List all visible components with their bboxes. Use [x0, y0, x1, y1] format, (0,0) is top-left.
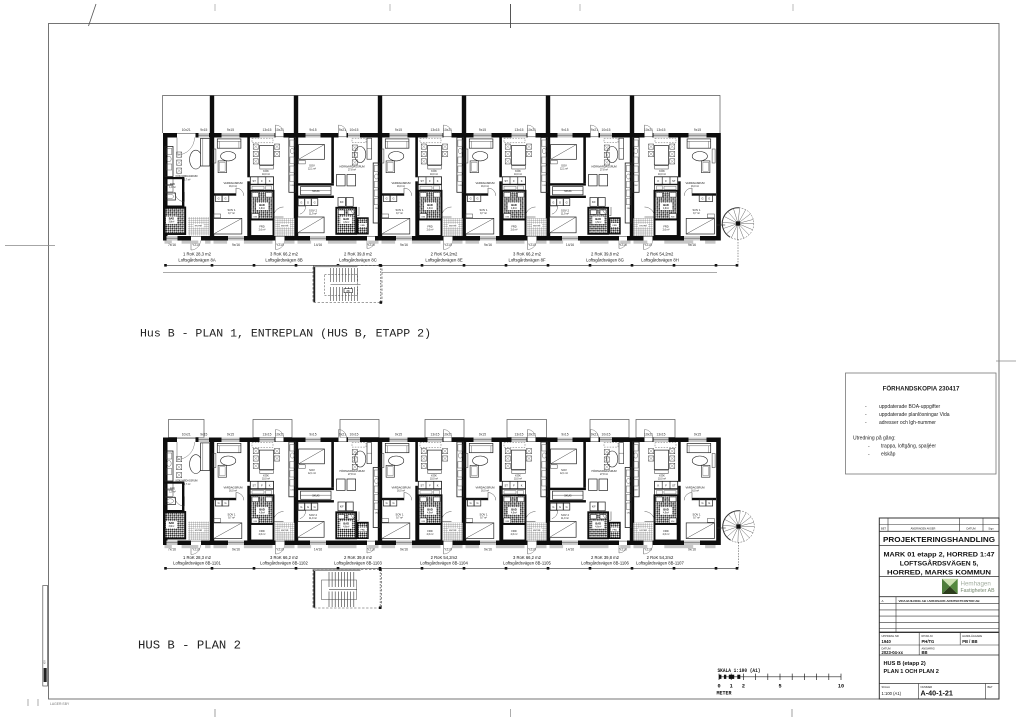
svg-text:10x21: 10x21: [275, 128, 284, 132]
svg-text:ENTRÉ: ENTRÉ: [533, 225, 541, 228]
svg-text:G: G: [701, 196, 703, 200]
svg-text:DM: DM: [542, 490, 546, 492]
svg-text:16,0 m²: 16,0 m²: [229, 489, 237, 492]
svg-text:2 RoK 54,2m2: 2 RoK 54,2m2: [647, 555, 674, 560]
svg-text:Loftsgårdsvägen 8F: Loftsgårdsvägen 8F: [508, 257, 545, 262]
svg-text:10x21: 10x21: [527, 433, 536, 437]
svg-text:10x21: 10x21: [527, 128, 536, 132]
svg-text:9x15: 9x15: [479, 433, 486, 437]
svg-text:G: G: [300, 505, 302, 509]
svg-text:BAD: BAD: [169, 522, 175, 525]
svg-text:DM: DM: [375, 513, 379, 515]
svg-text:G: G: [708, 501, 710, 505]
svg-text:FRD: FRD: [361, 225, 366, 227]
svg-text:10,0 m²: 10,0 m²: [514, 173, 522, 176]
svg-text:KM: KM: [671, 521, 674, 523]
svg-text:G: G: [566, 505, 568, 509]
svg-text:10,0 m²: 10,0 m²: [430, 173, 438, 176]
svg-text:ENTRÉ: ENTRÉ: [639, 529, 647, 532]
svg-text:16,0 m²: 16,0 m²: [397, 489, 405, 492]
svg-text:3,8m²: 3,8m²: [168, 525, 174, 528]
svg-text:2 RoK 54,2m2: 2 RoK 54,2m2: [431, 252, 458, 257]
svg-text:G: G: [559, 200, 561, 204]
svg-text:FRD: FRD: [361, 530, 366, 532]
svg-text:10x15: 10x15: [602, 433, 611, 437]
svg-text:16,0 m²: 16,0 m²: [691, 489, 699, 492]
svg-text:SKUG: SKUG: [312, 494, 319, 498]
svg-text:2,6 m²: 2,6 m²: [427, 533, 434, 536]
svg-text:1940: 1940: [882, 639, 892, 644]
svg-text:9x15: 9x15: [200, 128, 207, 132]
svg-text:G: G: [300, 200, 302, 204]
svg-text:2,6 m²: 2,6 m²: [259, 533, 266, 536]
svg-text:1,0 m²: 1,0 m²: [169, 490, 176, 493]
svg-text:HANDLÄGGARE: HANDLÄGGARE: [962, 634, 982, 638]
svg-text:ST: ST: [421, 483, 425, 487]
svg-text:10,0 m²: 10,0 m²: [262, 173, 270, 176]
svg-text:9x15: 9x15: [561, 433, 568, 437]
svg-text:Loftsgårdsvägen 8B-1104: Loftsgårdsvägen 8B-1104: [420, 561, 468, 566]
svg-text:KV: KV: [43, 660, 47, 664]
svg-text:2,6 m²: 2,6 m²: [427, 229, 434, 232]
svg-text:DM: DM: [634, 490, 638, 492]
svg-text:DATUM: DATUM: [966, 526, 975, 530]
svg-text:G: G: [224, 501, 226, 505]
svg-text:12,1 m²: 12,1 m²: [560, 472, 568, 475]
svg-text:KM: KM: [506, 521, 509, 523]
svg-text:9x/16: 9x/16: [484, 243, 492, 247]
svg-text:Loftsgårdsvägen 8G: Loftsgårdsvägen 8G: [586, 257, 624, 262]
svg-text:G: G: [224, 196, 226, 200]
svg-text:1,0 m²: 1,0 m²: [169, 186, 176, 189]
svg-text:K: K: [437, 179, 439, 183]
svg-text:4,9m²: 4,9m²: [511, 207, 517, 210]
svg-text:DM: DM: [290, 490, 294, 492]
svg-text:G: G: [386, 501, 388, 505]
svg-text:Y210: Y210: [528, 547, 536, 551]
svg-text:10x15: 10x15: [350, 433, 359, 437]
svg-text:PLAN 1 OCH PLAN 2: PLAN 1 OCH PLAN 2: [884, 669, 939, 675]
svg-text:9,7 m²: 9,7 m²: [396, 516, 403, 519]
svg-text:4,9m²: 4,9m²: [663, 207, 669, 210]
svg-text:KM: KM: [422, 521, 425, 523]
svg-text:9x/16: 9x/16: [400, 547, 408, 551]
svg-text:G: G: [476, 196, 478, 200]
svg-text:12,1 m²: 12,1 m²: [560, 167, 568, 170]
svg-text:Loftsgårdsvägen 8B-1106: Loftsgårdsvägen 8B-1106: [581, 561, 629, 566]
svg-text:4,6m²: 4,6m²: [343, 221, 349, 224]
svg-text:16,0 m²: 16,0 m²: [229, 185, 237, 188]
svg-text:G: G: [386, 196, 388, 200]
svg-text:10x21: 10x21: [182, 433, 191, 437]
svg-text:10x15: 10x15: [350, 128, 359, 132]
svg-text:13x15: 13x15: [263, 433, 272, 437]
svg-text:PROJEKTERINGSHANDLING: PROJEKTERINGSHANDLING: [883, 535, 995, 544]
svg-text:G: G: [552, 200, 554, 204]
svg-text:HORRED, MARKS KOMMUN: HORRED, MARKS KOMMUN: [887, 569, 991, 576]
svg-text:ENTRÉ: ENTRÉ: [281, 225, 289, 228]
svg-text:13x15: 13x15: [263, 128, 272, 132]
svg-text:DM: DM: [627, 513, 631, 515]
svg-text:SKUG: SKUG: [312, 189, 319, 193]
svg-text:K/F: K/F: [340, 505, 344, 508]
svg-text:13x15: 13x15: [657, 128, 666, 132]
svg-text:1 RoK 28,3 m2: 1 RoK 28,3 m2: [183, 555, 212, 560]
svg-text:14/16: 14/16: [314, 547, 322, 551]
svg-text:4,9m²: 4,9m²: [511, 511, 517, 514]
svg-text:A: A: [882, 599, 884, 603]
svg-text:KM: KM: [254, 216, 257, 218]
svg-text:K: K: [269, 179, 271, 183]
svg-text:trappa, loftgång, spaljéer: trappa, loftgång, spaljéer: [881, 443, 936, 450]
svg-text:KM: KM: [671, 216, 674, 218]
svg-text:LOFTSGÅRDSVÄGEN 5,: LOFTSGÅRDSVÄGEN 5,: [900, 559, 979, 568]
svg-text:4,6m²: 4,6m²: [343, 525, 349, 528]
svg-text:0: 0: [717, 684, 720, 690]
svg-text:ENTRÉ: ENTRÉ: [281, 529, 289, 532]
svg-text:Loftsgårdsvägen 8B-1101: Loftsgårdsvägen 8B-1101: [173, 561, 221, 566]
svg-text:10,0 m²: 10,0 m²: [430, 477, 438, 480]
svg-text:11,9 m²: 11,9 m²: [309, 212, 317, 215]
svg-text:9,7 m²: 9,7 m²: [693, 516, 700, 519]
svg-text:12,1 m²: 12,1 m²: [308, 472, 316, 475]
svg-text:G: G: [470, 501, 472, 505]
svg-text:12,1 m²: 12,1 m²: [308, 167, 316, 170]
svg-text:BET: BET: [881, 526, 886, 530]
svg-text:HUS B - PLAN 2: HUS B - PLAN 2: [138, 640, 241, 653]
svg-text:2,6 m²: 2,6 m²: [663, 229, 670, 232]
svg-text:4,9m²: 4,9m²: [663, 511, 669, 514]
svg-text:Fastigheter AB: Fastigheter AB: [961, 588, 996, 594]
svg-text:ENTRÉ: ENTRÉ: [449, 225, 457, 228]
svg-text:5: 5: [778, 684, 781, 690]
svg-text:9,7 m²: 9,7 m²: [693, 212, 700, 215]
svg-text:ST: ST: [253, 179, 257, 183]
svg-text:10x21: 10x21: [443, 433, 452, 437]
svg-text:KM: KM: [254, 521, 257, 523]
svg-text:2 RoK 54,2m2: 2 RoK 54,2m2: [431, 555, 458, 560]
svg-text:11,9 m²: 11,9 m²: [561, 517, 569, 520]
svg-text:3 RoK 66,2 m2: 3 RoK 66,2 m2: [513, 555, 542, 560]
svg-text:10x21: 10x21: [443, 128, 452, 132]
svg-text:G: G: [307, 200, 309, 204]
svg-text:10x21: 10x21: [275, 433, 284, 437]
svg-text:9x15: 9x15: [561, 128, 568, 132]
svg-text:adresser och lgh-nummer: adresser och lgh-nummer: [879, 420, 936, 426]
svg-text:10x21: 10x21: [644, 128, 653, 132]
svg-text:10x21: 10x21: [182, 128, 191, 132]
svg-text:K: K: [521, 483, 523, 487]
svg-text:DM: DM: [542, 185, 546, 187]
svg-text:FRD: FRD: [170, 183, 175, 186]
svg-text:KM: KM: [506, 216, 509, 218]
svg-text:SKALA 1:100 (A1): SKALA 1:100 (A1): [718, 668, 761, 674]
svg-text:13x15: 13x15: [515, 128, 524, 132]
svg-text:10x21: 10x21: [644, 433, 653, 437]
svg-text:3 RoK 66,2 m2: 3 RoK 66,2 m2: [513, 252, 542, 257]
svg-text:K: K: [437, 483, 439, 487]
svg-text:elskåp: elskåp: [881, 451, 896, 458]
svg-text:4,9m²: 4,9m²: [259, 207, 265, 210]
svg-text:9x/16: 9x/16: [400, 243, 408, 247]
svg-text:Utredning på gång:: Utredning på gång:: [853, 435, 896, 442]
svg-text:27,8 m²: 27,8 m²: [348, 473, 356, 476]
svg-text:10: 10: [838, 684, 844, 690]
svg-text:27,8 m²: 27,8 m²: [600, 169, 608, 172]
svg-text:DM: DM: [627, 208, 631, 210]
svg-text:ST: ST: [253, 483, 257, 487]
svg-text:Loftsgårdsvägen 8H: Loftsgårdsvägen 8H: [641, 257, 678, 262]
svg-text:11,9 m²: 11,9 m²: [309, 517, 317, 520]
svg-text:9,7 m²: 9,7 m²: [228, 516, 235, 519]
svg-text:Loftsgårdsvägen 8B-1105: Loftsgårdsvägen 8B-1105: [503, 561, 551, 566]
svg-text:3 RoK 66,2 m2: 3 RoK 66,2 m2: [270, 252, 299, 257]
svg-text:(B): (B): [346, 289, 350, 293]
svg-text:10,0 m²: 10,0 m²: [514, 477, 522, 480]
svg-text:14/16: 14/16: [566, 547, 574, 551]
svg-text:G: G: [218, 501, 220, 505]
svg-text:ENTRÉ: ENTRÉ: [533, 529, 541, 532]
svg-text:Hus B - PLAN 1, ENTREPLAN (HUS: Hus B - PLAN 1, ENTREPLAN (HUS B, ETAPP …: [140, 329, 431, 341]
svg-text:Sign: Sign: [988, 526, 994, 530]
svg-text:SKUG: SKUG: [564, 494, 571, 498]
svg-text:DM: DM: [290, 185, 294, 187]
svg-text:9x15: 9x15: [395, 128, 402, 132]
svg-text:G: G: [470, 196, 472, 200]
svg-text:Y210: Y210: [528, 243, 536, 247]
svg-text:1: 1: [730, 684, 733, 690]
svg-text:9x15: 9x15: [309, 128, 316, 132]
svg-text:14/16: 14/16: [314, 243, 322, 247]
svg-text:3 RoK 66,2 m2: 3 RoK 66,2 m2: [270, 555, 299, 560]
svg-text:16,0 m²: 16,0 m²: [481, 489, 489, 492]
svg-text:KM: KM: [422, 216, 425, 218]
svg-text:Y210: Y210: [276, 243, 284, 247]
svg-text:9x15: 9x15: [227, 433, 234, 437]
svg-text:2,6 m²: 2,6 m²: [511, 533, 518, 536]
svg-text:RITAD AV: RITAD AV: [922, 634, 934, 638]
svg-text:FRD: FRD: [613, 225, 618, 227]
svg-text:10,0 m²: 10,0 m²: [658, 173, 666, 176]
svg-text:16,0 m²: 16,0 m²: [397, 185, 405, 188]
svg-text:ST: ST: [505, 179, 509, 183]
svg-text:ENTRÉ: ENTRÉ: [639, 225, 647, 228]
svg-text:Y210: Y210: [444, 243, 452, 247]
svg-text:2 RoK 54,2m2: 2 RoK 54,2m2: [647, 252, 674, 257]
svg-text:9x/16: 9x/16: [484, 547, 492, 551]
svg-text:13x15: 13x15: [657, 433, 666, 437]
svg-text:13x15: 13x15: [431, 128, 440, 132]
svg-text:9x15: 9x15: [200, 433, 207, 437]
svg-text:2 RoK 39,8 m2: 2 RoK 39,8 m2: [591, 252, 620, 257]
svg-text:K/F: K/F: [340, 201, 344, 204]
svg-text:14/16: 14/16: [566, 243, 574, 247]
svg-text:Loftsgårdsvägen 8B: Loftsgårdsvägen 8B: [265, 257, 302, 262]
svg-text:10,0 m²: 10,0 m²: [262, 477, 270, 480]
svg-text:9x15: 9x15: [395, 433, 402, 437]
svg-text:PB / BB: PB / BB: [962, 639, 977, 644]
svg-text:G: G: [476, 501, 478, 505]
svg-text:2023-04-xx: 2023-04-xx: [882, 650, 904, 655]
svg-text:uppdaterade planlösningar Vida: uppdaterade planlösningar Vida: [879, 412, 950, 418]
svg-text:DM: DM: [458, 490, 462, 492]
svg-text:9x15: 9x15: [694, 433, 701, 437]
svg-text:DM: DM: [458, 185, 462, 187]
svg-text:Loftsgårdsvägen 8C: Loftsgårdsvägen 8C: [339, 257, 376, 262]
svg-text:K: K: [658, 483, 660, 487]
svg-text:2,6 m²: 2,6 m²: [511, 229, 518, 232]
svg-text:9x15: 9x15: [479, 128, 486, 132]
svg-text:1:100 (A1): 1:100 (A1): [882, 691, 902, 696]
svg-text:G: G: [392, 196, 394, 200]
svg-text:BAD: BAD: [169, 218, 175, 221]
svg-text:9,7 m²: 9,7 m²: [228, 212, 235, 215]
svg-text:1 RoK 28,3 m2: 1 RoK 28,3 m2: [183, 252, 212, 257]
svg-text:10,0 m²: 10,0 m²: [658, 477, 666, 480]
svg-text:Hemhagen: Hemhagen: [961, 581, 992, 588]
svg-text:Y210: Y210: [276, 547, 284, 551]
svg-text:ST: ST: [421, 179, 425, 183]
svg-text:Loftsgårdsvägen 8B-1103: Loftsgårdsvägen 8B-1103: [334, 561, 382, 566]
svg-text:G: G: [314, 200, 316, 204]
svg-text:G: G: [708, 196, 710, 200]
svg-text:9,7 m²: 9,7 m²: [480, 212, 487, 215]
svg-text:Loftsgårdsvägen 8B-1102: Loftsgårdsvägen 8B-1102: [260, 561, 308, 566]
svg-text:13x15: 13x15: [515, 433, 524, 437]
svg-text:G: G: [552, 505, 554, 509]
svg-text:FÖRHANDSKOPIA 230417: FÖRHANDSKOPIA 230417: [883, 386, 960, 393]
svg-text:SKALA: SKALA: [882, 685, 891, 689]
svg-text:ST: ST: [505, 483, 509, 487]
svg-text:UPPDRAG NR: UPPDRAG NR: [882, 634, 899, 638]
svg-text:K: K: [521, 179, 523, 183]
svg-text:K: K: [658, 179, 660, 183]
svg-text:2: 2: [742, 684, 745, 690]
svg-text:BB: BB: [922, 650, 928, 655]
svg-text:4,6m²: 4,6m²: [595, 525, 601, 528]
svg-text:SKUG: SKUG: [564, 189, 571, 193]
svg-text:K/F: K/F: [592, 505, 596, 508]
svg-text:4,9m²: 4,9m²: [259, 511, 265, 514]
svg-text:ENTRÉ: ENTRÉ: [195, 225, 203, 228]
svg-text:9,7 m²: 9,7 m²: [480, 516, 487, 519]
svg-text:MARK 01 etapp 2, HORRED 1:47: MARK 01 etapp 2, HORRED 1:47: [884, 552, 995, 559]
svg-text:HUS B (etapp 2): HUS B (etapp 2): [884, 661, 926, 667]
svg-text:Loftsgårdsvägen 8E: Loftsgårdsvägen 8E: [425, 257, 462, 262]
svg-text:3,8m²: 3,8m²: [168, 221, 174, 224]
svg-text:METER: METER: [717, 691, 732, 697]
svg-text:27,8 m²: 27,8 m²: [348, 169, 356, 172]
svg-text:ÄNDRINGEN AVSER: ÄNDRINGEN AVSER: [911, 526, 936, 530]
svg-text:VIDA BUILDING AB I ARKOSARK AR: VIDA BUILDING AB I ARKOSARK ARKITEKTKONT…: [899, 599, 981, 603]
svg-text:Y210: Y210: [444, 547, 452, 551]
svg-text:ENTRÉ: ENTRÉ: [449, 529, 457, 532]
svg-text:LAGER:SBY: LAGER:SBY: [50, 702, 70, 706]
svg-text:G: G: [566, 200, 568, 204]
svg-text:Loftsgårdsvägen 8A: Loftsgårdsvägen 8A: [178, 257, 215, 262]
svg-text:G: G: [218, 196, 220, 200]
svg-text:Loftsgårdsvägen 8B-1107: Loftsgårdsvägen 8B-1107: [636, 561, 684, 566]
svg-text:4,9m²: 4,9m²: [427, 511, 433, 514]
svg-text:9x15: 9x15: [227, 128, 234, 132]
svg-text:uppdaterade BOA-uppgifter: uppdaterade BOA-uppgifter: [879, 404, 940, 410]
svg-text:2,6 m²: 2,6 m²: [259, 229, 266, 232]
svg-text:9x/16: 9x/16: [232, 547, 240, 551]
svg-text:K/F: K/F: [592, 201, 596, 204]
svg-text:2 RoK 39,8 m2: 2 RoK 39,8 m2: [344, 252, 373, 257]
svg-text:9x15: 9x15: [309, 433, 316, 437]
svg-text:ST: ST: [672, 179, 676, 183]
svg-text:4,6m²: 4,6m²: [595, 221, 601, 224]
svg-text:ST: ST: [672, 483, 676, 487]
svg-text:2 RoK 39,8 m2: 2 RoK 39,8 m2: [344, 555, 373, 560]
svg-text:9x/16: 9x/16: [232, 243, 240, 247]
svg-text:G: G: [392, 501, 394, 505]
svg-text:G: G: [701, 501, 703, 505]
svg-text:PH/TG: PH/TG: [922, 639, 935, 644]
svg-text:BET: BET: [988, 685, 993, 689]
svg-text:13x15: 13x15: [431, 433, 440, 437]
svg-text:ENTRÉ: ENTRÉ: [195, 529, 203, 532]
svg-text:27,8 m²: 27,8 m²: [600, 473, 608, 476]
svg-text:K: K: [269, 483, 271, 487]
svg-text:G: G: [307, 505, 309, 509]
svg-text:FRD: FRD: [613, 530, 618, 532]
svg-text:G: G: [314, 505, 316, 509]
svg-text:4,9m²: 4,9m²: [427, 207, 433, 210]
svg-text:16,0 m²: 16,0 m²: [691, 185, 699, 188]
svg-text:DM: DM: [375, 208, 379, 210]
svg-text:16,0 m²: 16,0 m²: [481, 185, 489, 188]
svg-text:11,9 m²: 11,9 m²: [561, 212, 569, 215]
svg-text:G: G: [559, 505, 561, 509]
svg-text:9x15: 9x15: [694, 128, 701, 132]
svg-text:10x15: 10x15: [602, 128, 611, 132]
svg-text:FRD: FRD: [170, 487, 175, 490]
svg-text:A-40-1-21: A-40-1-21: [921, 689, 953, 698]
svg-text:2 RoK 39,8 m2: 2 RoK 39,8 m2: [591, 555, 620, 560]
svg-text:DM: DM: [634, 185, 638, 187]
svg-text:2,6 m²: 2,6 m²: [663, 533, 670, 536]
svg-text:9,7 m²: 9,7 m²: [396, 212, 403, 215]
